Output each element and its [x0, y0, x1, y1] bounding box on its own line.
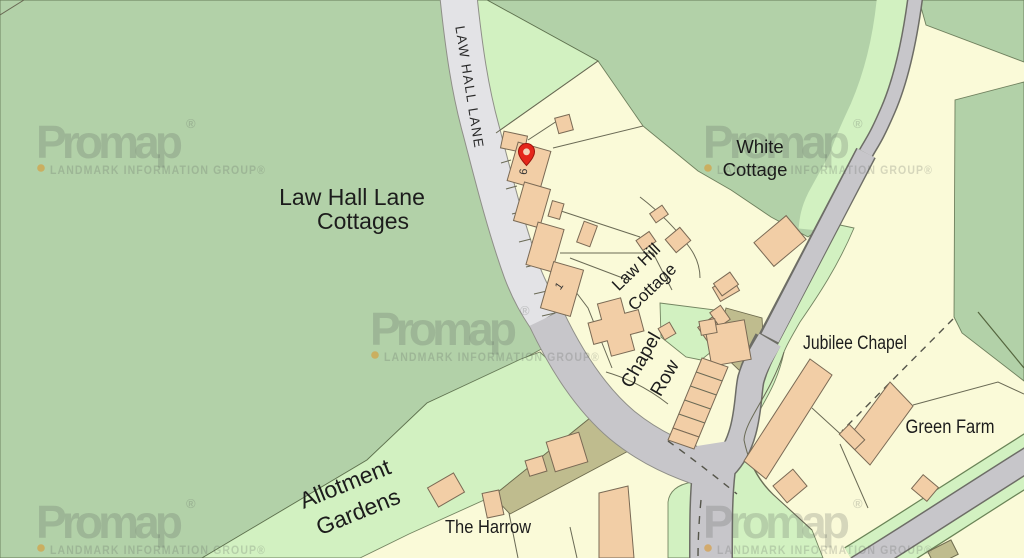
svg-text:®: ®	[186, 496, 196, 511]
svg-text:Green Farm: Green Farm	[906, 417, 995, 438]
svg-text:LANDMARK INFORMATION GROUP®: LANDMARK INFORMATION GROUP®	[384, 352, 600, 364]
svg-text:®: ®	[520, 303, 530, 318]
svg-text:Promap: Promap	[36, 116, 183, 168]
svg-text:6: 6	[518, 168, 530, 175]
svg-text:LANDMARK INFORMATION GROUP®: LANDMARK INFORMATION GROUP®	[50, 545, 266, 557]
svg-text:Promap: Promap	[370, 303, 517, 355]
svg-text:LANDMARK INFORMATION GROUP®: LANDMARK INFORMATION GROUP®	[717, 545, 933, 557]
svg-text:The Harrow: The Harrow	[445, 517, 532, 537]
svg-text:Law Hall Lane: Law Hall Lane	[279, 184, 425, 210]
svg-text:Jubilee Chapel: Jubilee Chapel	[803, 333, 907, 354]
svg-text:Cottages: Cottages	[317, 208, 409, 234]
svg-text:Cottage: Cottage	[723, 159, 788, 180]
svg-text:®: ®	[186, 116, 196, 131]
svg-text:®: ®	[853, 496, 863, 511]
svg-text:Promap: Promap	[703, 496, 850, 548]
svg-text:LANDMARK INFORMATION GROUP®: LANDMARK INFORMATION GROUP®	[50, 165, 266, 177]
svg-text:®: ®	[853, 116, 863, 131]
svg-text:Promap: Promap	[36, 496, 183, 548]
svg-text:White: White	[736, 136, 783, 157]
